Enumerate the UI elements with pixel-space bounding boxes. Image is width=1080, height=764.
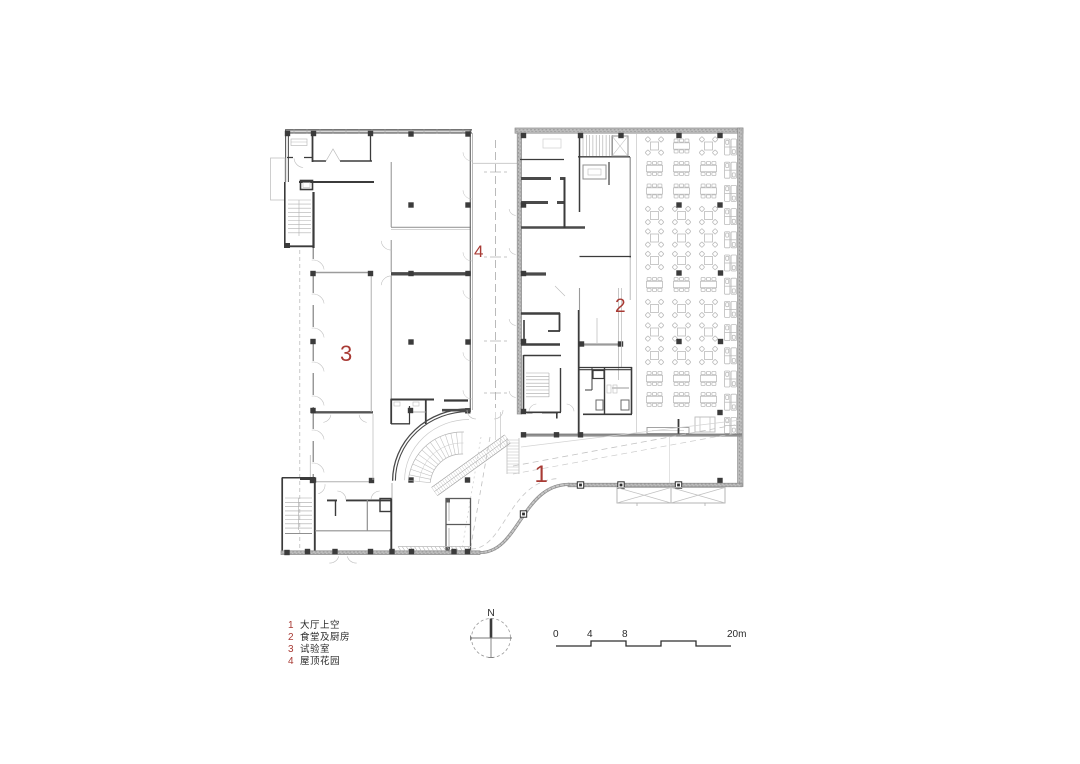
svg-text:大厅上空: 大厅上空 (300, 619, 340, 631)
svg-text:3: 3 (340, 341, 352, 366)
svg-text:8: 8 (622, 629, 628, 640)
svg-text:4: 4 (587, 629, 593, 640)
svg-text:N: N (487, 607, 495, 619)
svg-text:4: 4 (288, 656, 294, 667)
svg-text:2: 2 (288, 632, 294, 643)
svg-text:20m: 20m (727, 629, 746, 640)
svg-text:1: 1 (535, 461, 548, 488)
svg-text:屋顶花园: 屋顶花园 (300, 655, 340, 667)
svg-text:0: 0 (553, 629, 559, 640)
svg-text:3: 3 (288, 644, 294, 655)
svg-text:试验室: 试验室 (300, 643, 330, 655)
svg-text:1: 1 (288, 620, 294, 631)
svg-text:4: 4 (474, 242, 483, 261)
svg-text:食堂及厨房: 食堂及厨房 (300, 631, 350, 643)
svg-text:2: 2 (615, 296, 626, 317)
